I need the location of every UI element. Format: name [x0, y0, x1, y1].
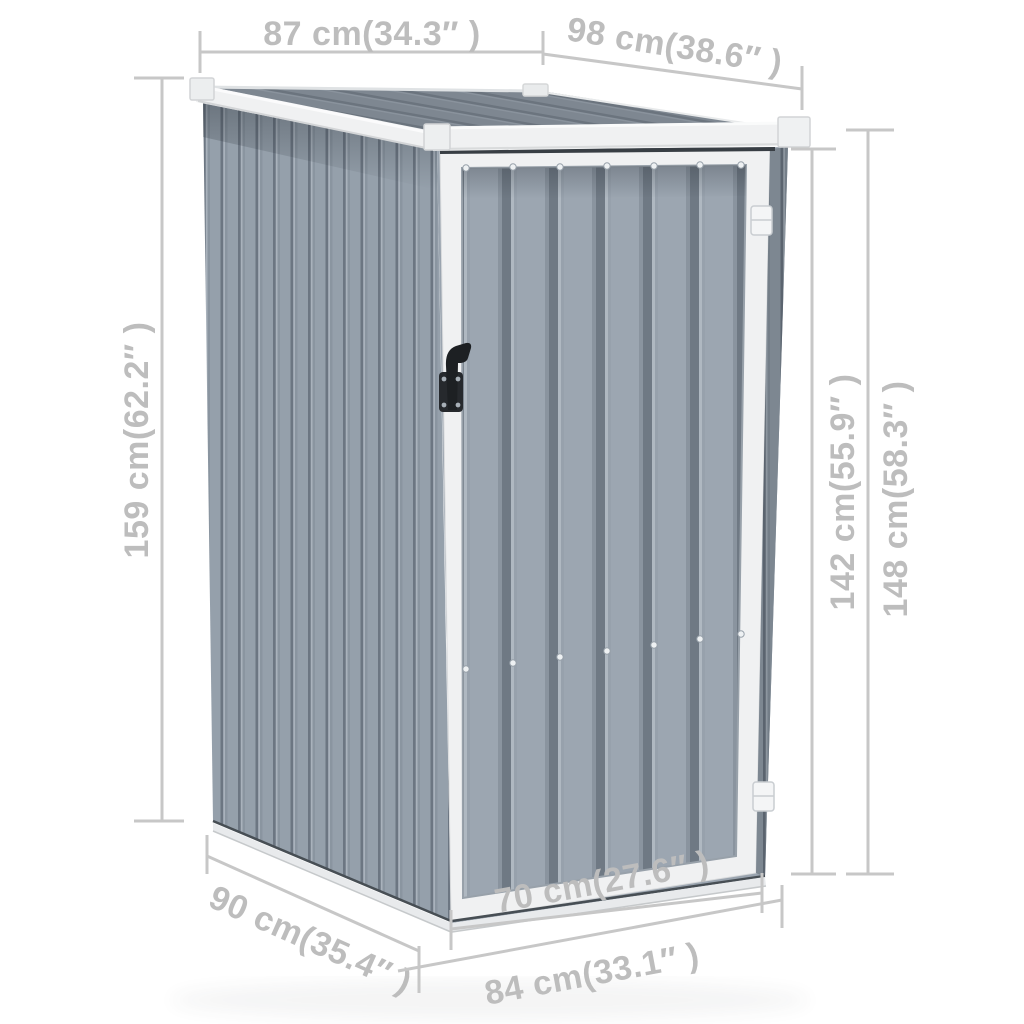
garden-shed — [190, 78, 810, 932]
shed-dimension-diagram: 87 cm(34.3″ ) 98 cm(38.6″ ) 159 cm(62.2″… — [0, 0, 1024, 1024]
roof-corner-cap-back — [523, 84, 548, 96]
dim-front-height-label: 159 cm(62.2″ ) — [118, 322, 156, 559]
door-hinge-bottom — [753, 782, 774, 811]
product-image-canvas: 87 cm(34.3″ ) 98 cm(38.6″ ) 159 cm(62.2″… — [0, 0, 1024, 1024]
dim-door-height-label: 142 cm(55.9″ ) — [824, 374, 862, 611]
dim-roof-width-label: 87 cm(34.3″ ) — [263, 15, 480, 53]
door-top-shadow — [462, 165, 746, 199]
roof-corner-cap-mid — [424, 124, 450, 150]
left-wall-panel — [203, 97, 451, 921]
door-panel — [462, 165, 746, 898]
roof-corner-cap-front-left — [190, 78, 214, 100]
dim-total-height-label: 148 cm(58.3″ ) — [877, 381, 915, 618]
roof-corner-cap-right — [778, 117, 810, 147]
door-hinge-top — [751, 206, 772, 235]
